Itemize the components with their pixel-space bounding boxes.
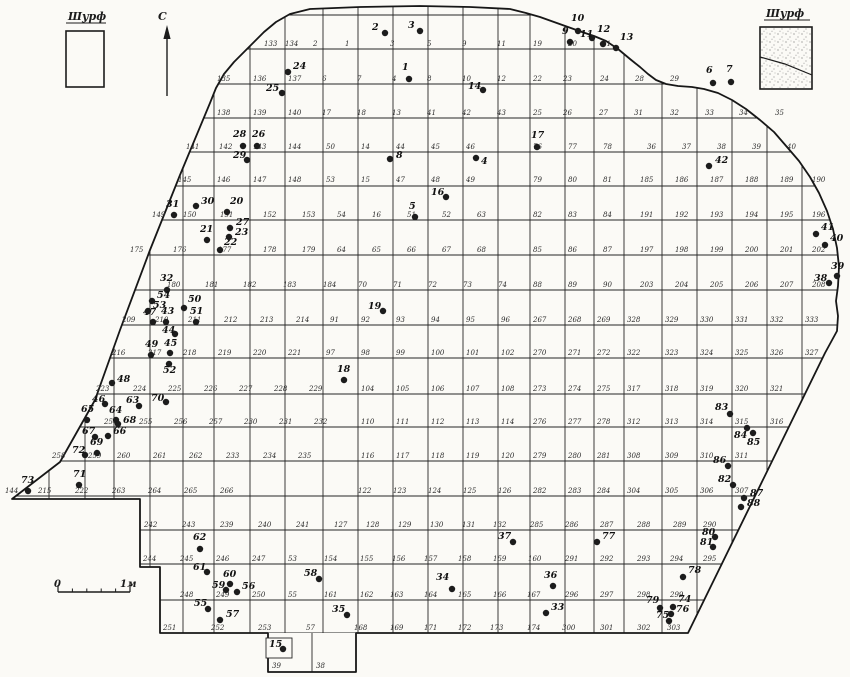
find-spot-dot — [224, 209, 230, 215]
find-spot-number: 19 — [368, 301, 382, 312]
grid-cell-number: 73 — [463, 281, 472, 289]
grid-cell-number: 38 — [316, 662, 325, 670]
grid-cell-number: 16 — [372, 211, 381, 219]
find-spot-dot — [204, 237, 210, 243]
grid-cell-number: 223 — [95, 385, 110, 393]
find-spot-number: 24 — [292, 61, 306, 72]
grid-cell-number: 219 — [217, 349, 232, 357]
grid-cell-number: 209 — [121, 316, 136, 324]
grid-cell-number: 98 — [361, 349, 370, 357]
grid-cell-number: 191 — [640, 211, 653, 219]
grid-cell-number: 182 — [243, 281, 257, 289]
find-spot-number: 23 — [234, 227, 249, 238]
find-spot-dot — [197, 546, 203, 552]
grid-cell-number: 247 — [251, 555, 266, 563]
grid-cell-number: 292 — [599, 555, 614, 563]
find-spot-number: 16 — [431, 187, 445, 198]
find-spot-number: 68 — [123, 415, 137, 426]
grid-cell-number: 242 — [143, 521, 158, 529]
find-spot-number: 57 — [226, 609, 240, 620]
grid-cell-number: 330 — [700, 316, 714, 324]
north-label: С — [158, 10, 167, 23]
grid-cell-number: 113 — [466, 418, 480, 426]
grid-cell-number: 142 — [219, 143, 233, 151]
grid-cell-number: 281 — [596, 452, 610, 460]
grid-cell-number: 314 — [700, 418, 713, 426]
grid-cell-number: 262 — [188, 452, 203, 460]
grid-cell-number: 308 — [627, 452, 641, 460]
grid-cell-number: 36 — [647, 143, 656, 151]
find-spot-dot — [834, 273, 840, 279]
grid-cell-number: 322 — [627, 349, 641, 357]
grid-cell-number: 130 — [430, 521, 444, 529]
find-spot-dot — [150, 319, 156, 325]
grid-cell-number: 135 — [217, 75, 231, 83]
grid-cell-number: 68 — [477, 246, 486, 254]
grid-cell-number: 248 — [179, 591, 194, 599]
grid-cell-number: 71 — [393, 281, 402, 289]
grid-cell-number: 125 — [463, 487, 477, 495]
grid-cell-number: 23 — [562, 75, 572, 83]
grid-cell-number: 65 — [372, 246, 381, 254]
grid-cell-number: 304 — [627, 487, 640, 495]
grid-cell-number: 215 — [37, 487, 52, 495]
find-spot-number: 13 — [620, 32, 634, 43]
grid-cell-number: 297 — [599, 591, 614, 599]
grid-cell-number: 288 — [636, 521, 651, 529]
grid-cell-number: 244 — [142, 555, 156, 563]
find-spot-number: 81 — [700, 537, 713, 548]
find-spot-number: 28 — [232, 129, 247, 140]
grid-cell-number: 283 — [567, 487, 582, 495]
grid-cell-number: 91 — [330, 316, 339, 324]
grid-cell-number: 326 — [770, 349, 784, 357]
find-spot-number: 30 — [201, 196, 215, 207]
test-pit-right: Шурф — [760, 7, 812, 89]
find-spot-dot — [710, 80, 716, 86]
grid-cell-number: 306 — [700, 487, 714, 495]
grid-cell-number: 245 — [179, 555, 194, 563]
grid-cell-number: 50 — [326, 143, 335, 151]
north-arrow-head — [163, 25, 170, 39]
grid-cell-number: 233 — [225, 452, 240, 460]
find-spot-number: 62 — [193, 532, 207, 543]
grid-cell-number: 216 — [111, 349, 126, 357]
grid-cell-number: 131 — [462, 521, 475, 529]
find-spot-number: 67 — [82, 426, 96, 437]
grid-cell-number: 239 — [219, 521, 234, 529]
grid-cell-number: 138 — [217, 109, 231, 117]
grid-cell-number: 55 — [288, 591, 297, 599]
find-spot-dot — [109, 380, 115, 386]
grid-cell-number: 77 — [568, 143, 577, 151]
grid-cell-number: 160 — [528, 555, 542, 563]
grid-cell-number: 39 — [752, 143, 761, 151]
grid-cell-number: 93 — [396, 316, 405, 324]
find-spot-dot — [613, 45, 619, 51]
test-pit-right-stipple — [761, 28, 811, 88]
find-spot-dot — [94, 450, 100, 456]
grid-cell-number: 13 — [392, 109, 401, 117]
find-spot-dot — [148, 352, 154, 358]
find-spot-dot — [149, 298, 155, 304]
grid-cell-number: 166 — [493, 591, 507, 599]
grid-cell-number: 190 — [812, 176, 826, 184]
find-spot-dot — [181, 305, 187, 311]
grid-cell-number: 85 — [533, 246, 542, 254]
grid-cell-number: 4 — [391, 75, 396, 83]
grid-cell-number: 133 — [264, 40, 278, 48]
grid-cell-number: 144 — [5, 487, 18, 495]
grid-cell-number: 274 — [567, 385, 581, 393]
grid-cell-number: 26 — [562, 109, 572, 117]
grid-cell-number: 11 — [497, 40, 506, 48]
grid-cell-number: 187 — [710, 176, 724, 184]
grid-cell-number: 118 — [431, 452, 445, 460]
grid-cell-number: 329 — [665, 316, 679, 324]
grid-cell-number: 5 — [427, 40, 432, 48]
grid-cell-number: 106 — [431, 385, 445, 393]
find-spot-dot — [285, 69, 291, 75]
find-spot-number: 10 — [571, 13, 585, 24]
find-spot-dot — [543, 610, 549, 616]
grid-cell-number: 111 — [396, 418, 409, 426]
grid-cell-number: 81 — [603, 176, 612, 184]
grid-cell-number: 40 — [786, 143, 796, 151]
find-spot-number: 52 — [163, 365, 177, 376]
find-spot-number: 49 — [145, 339, 159, 350]
grid-cell-number: 328 — [627, 316, 641, 324]
grid-cell-number: 296 — [564, 591, 579, 599]
grid-cell-number: 33 — [705, 109, 714, 117]
grid-cell-number: 309 — [665, 452, 679, 460]
find-spot-number: 8 — [396, 150, 403, 161]
grid-cell-number: 302 — [637, 624, 651, 632]
grid-cell-number: 231 — [278, 418, 292, 426]
grid-cell-number: 134 — [285, 40, 298, 48]
find-spot-number: 86 — [713, 455, 727, 466]
grid-cell-number: 271 — [567, 349, 581, 357]
grid-cell-number: 47 — [395, 176, 405, 184]
find-spot-dot — [550, 583, 556, 589]
test-pit-left-label: Шурф — [67, 10, 106, 23]
grid-cell-number: 39 — [272, 662, 281, 670]
find-spot-number: 38 — [814, 273, 828, 284]
find-spot-number: 88 — [747, 498, 761, 509]
grid-cell-number: 222 — [74, 487, 89, 495]
grid-cell-number: 252 — [210, 624, 225, 632]
grid-cell-number: 72 — [428, 281, 437, 289]
grid-cell-number: 255 — [138, 418, 153, 426]
grid-cell-number: 194 — [745, 211, 758, 219]
find-spot-number: 70 — [151, 393, 165, 404]
grid-cell-number: 224 — [132, 385, 146, 393]
grid-cell-number: 90 — [603, 281, 612, 289]
grid-cell-numbers: 1331342135911192021135136137674810122223… — [5, 40, 826, 670]
find-spot-dot — [25, 488, 31, 494]
find-spot-number: 7 — [726, 64, 733, 75]
grid-cell-number: 186 — [675, 176, 689, 184]
grid-cell-number: 235 — [297, 452, 312, 460]
grid-cell-number: 204 — [674, 281, 688, 289]
grid-cell-number: 323 — [665, 349, 679, 357]
grid-cell-number: 188 — [745, 176, 759, 184]
grid-cell-number: 149 — [152, 211, 166, 219]
find-spot-dot — [668, 611, 674, 617]
find-spot-number: 6 — [706, 65, 713, 76]
grid-cell-number: 74 — [498, 281, 507, 289]
grid-cell-number: 261 — [152, 452, 166, 460]
grid-cell-number: 181 — [205, 281, 218, 289]
grid-cell-number: 112 — [431, 418, 445, 426]
grid-cell-number: 305 — [665, 487, 679, 495]
grid-cell-number: 205 — [709, 281, 724, 289]
grid-cell-number: 124 — [428, 487, 441, 495]
grid-cell-number: 29 — [669, 75, 679, 83]
grid-cell-number: 41 — [426, 109, 436, 117]
grid-cell-number: 207 — [779, 281, 794, 289]
find-spot-number: 61 — [193, 562, 206, 573]
find-spot-number: 77 — [602, 531, 616, 542]
find-spot-dot — [105, 433, 111, 439]
grid-cell-number: 89 — [568, 281, 577, 289]
grid-cell-number: 316 — [770, 418, 784, 426]
grid-cell-number: 220 — [252, 349, 267, 357]
north-arrow: С — [158, 10, 171, 96]
find-spot-dot — [193, 203, 199, 209]
grid-cell-number: 153 — [302, 211, 316, 219]
grid-cell-number: 94 — [431, 316, 440, 324]
grid-cell-number: 154 — [324, 555, 337, 563]
grid-cell-number: 311 — [735, 452, 748, 460]
grid-cell-number: 3 — [390, 40, 395, 48]
grid-cell-number: 199 — [710, 246, 724, 254]
grid-cell-number: 87 — [603, 246, 612, 254]
find-spot-number: 37 — [498, 531, 512, 542]
grid-cell-number: 99 — [396, 349, 405, 357]
grid-cell-number: 88 — [533, 281, 542, 289]
find-spot-number: 54 — [157, 290, 170, 301]
find-spot-dot — [84, 417, 90, 423]
find-spot-dot — [240, 143, 246, 149]
find-spot-dot — [227, 581, 233, 587]
grid-cell-number: 139 — [253, 109, 267, 117]
find-spot-number: 56 — [242, 581, 256, 592]
find-spot-number: 17 — [531, 130, 545, 141]
grid-cell-number: 169 — [390, 624, 404, 632]
find-spot-number: 32 — [160, 273, 174, 284]
find-spot-number: 76 — [676, 604, 690, 615]
grid-cell-number: 294 — [669, 555, 683, 563]
grid-cell-number: 136 — [253, 75, 267, 83]
grid-cell-number: 218 — [182, 349, 197, 357]
find-spot-dot — [738, 504, 744, 510]
grid-cell-number: 97 — [326, 349, 335, 357]
find-spot-number: 25 — [265, 83, 280, 94]
grid-cell-number: 172 — [458, 624, 472, 632]
grid-cell-number: 277 — [567, 418, 582, 426]
grid-cell-number: 110 — [361, 418, 375, 426]
grid-cell-number: 243 — [181, 521, 196, 529]
grid-cell-number: 165 — [458, 591, 472, 599]
grid-cell-number: 287 — [599, 521, 614, 529]
grid-cell-number: 48 — [430, 176, 440, 184]
grid-cell-number: 105 — [396, 385, 410, 393]
grid-cell-number: 250 — [251, 591, 266, 599]
find-spot-number: 20 — [229, 196, 244, 207]
grid-cell-number: 256 — [173, 418, 188, 426]
grid-cell-number: 117 — [396, 452, 410, 460]
grid-cell-number: 284 — [596, 487, 610, 495]
grid-cell-number: 66 — [407, 246, 416, 254]
grid-cell-number: 192 — [675, 211, 689, 219]
grid-cell-number: 291 — [564, 555, 578, 563]
grid-cell-number: 164 — [424, 591, 437, 599]
find-spot-dot — [594, 539, 600, 545]
find-spot-dot — [115, 421, 121, 427]
grid-cell-number: 197 — [640, 246, 654, 254]
find-spot-number: 2 — [371, 22, 379, 33]
grid-cell-number: 78 — [603, 143, 612, 151]
find-spot-number: 1 — [402, 62, 409, 73]
grid-cell-number: 318 — [665, 385, 679, 393]
grid-cell-number: 266 — [219, 487, 234, 495]
grid-cell-number: 282 — [532, 487, 547, 495]
find-spot-dot — [234, 589, 240, 595]
find-spot-dot — [387, 156, 393, 162]
grid-lines — [0, 0, 850, 677]
grid-cell-number: 6 — [322, 75, 327, 83]
grid-cell-number: 67 — [442, 246, 451, 254]
find-spot-number: 82 — [718, 474, 732, 485]
find-spot-number: 59 — [212, 580, 226, 591]
grid-cell-number: 63 — [477, 211, 486, 219]
find-spot-dot — [417, 28, 423, 34]
grid-cell-number: 28 — [634, 75, 644, 83]
grid-cell-number: 300 — [562, 624, 576, 632]
grid-cell-number: 96 — [501, 316, 510, 324]
grid-cell-number: 150 — [183, 211, 197, 219]
find-spot-number: 15 — [269, 639, 283, 650]
grid-cell-number: 196 — [812, 211, 826, 219]
excavation-plan-canvas: 1331342135911192021135136137674810122223… — [0, 0, 850, 677]
find-spot-number: 27 — [235, 217, 250, 228]
grid-cell-number: 295 — [702, 555, 717, 563]
grid-cell-number: 32 — [670, 109, 679, 117]
find-spot-number: 31 — [166, 199, 179, 210]
grid-cell-number: 128 — [366, 521, 380, 529]
grid-cell-number: 251 — [162, 624, 176, 632]
find-spot-number: 33 — [551, 602, 565, 613]
find-spot-number: 39 — [831, 261, 845, 272]
grid-cell-number: 161 — [324, 591, 337, 599]
grid-cell-number: 198 — [675, 246, 689, 254]
grid-cell-number: 221 — [287, 349, 301, 357]
grid-cell-number: 126 — [498, 487, 512, 495]
find-spot-dot — [406, 76, 412, 82]
grid-cell-number: 155 — [360, 555, 374, 563]
grid-cell-number: 264 — [147, 487, 161, 495]
grid-cell-number: 214 — [295, 316, 309, 324]
grid-cell-number: 273 — [532, 385, 547, 393]
find-spot-dot — [341, 377, 347, 383]
grid-cell-number: 229 — [308, 385, 323, 393]
grid-cell-number: 107 — [466, 385, 480, 393]
find-spot-dot — [534, 144, 540, 150]
find-spot-number: 35 — [332, 604, 346, 615]
grid-cell-number: 84 — [603, 211, 612, 219]
grid-cell-number: 240 — [257, 521, 272, 529]
grid-cell-number: 24 — [599, 75, 609, 83]
grid-cell-number: 104 — [361, 385, 374, 393]
find-spot-number: 58 — [304, 568, 318, 579]
find-spot-number: 69 — [90, 437, 104, 448]
find-spot-number: 36 — [544, 570, 558, 581]
find-spot-number: 73 — [21, 475, 35, 486]
find-spot-number: 34 — [436, 572, 449, 583]
grid-cell-number: 53 — [288, 555, 297, 563]
grid-cell-number: 2 — [312, 40, 318, 48]
grid-cell-number: 7 — [357, 75, 362, 83]
grid-cell-number: 108 — [501, 385, 515, 393]
grid-cell-number: 156 — [392, 555, 406, 563]
grid-cell-number: 129 — [398, 521, 412, 529]
grid-cell-number: 140 — [288, 109, 302, 117]
grid-cell-number: 86 — [568, 246, 577, 254]
find-spot-dot — [473, 155, 479, 161]
grid-cell-number: 195 — [780, 211, 794, 219]
grid-cell-number: 53 — [326, 176, 335, 184]
grid-cell-number: 8 — [427, 75, 432, 83]
grid-cell-number: 18 — [357, 109, 366, 117]
find-spot-number: 66 — [113, 426, 127, 437]
find-spot-number: 50 — [188, 294, 202, 305]
find-spot-dot — [412, 214, 418, 220]
find-spot-dot — [382, 30, 388, 36]
find-spot-number: 64 — [109, 405, 122, 416]
grid-cell-number: 80 — [568, 176, 577, 184]
find-spot-dot — [813, 231, 819, 237]
grid-cell-number: 145 — [178, 176, 192, 184]
grid-cell-number: 331 — [735, 316, 748, 324]
test-pit-left-box — [66, 31, 104, 87]
grid-cell-number: 144 — [288, 143, 301, 151]
grid-cell-number: 83 — [568, 211, 577, 219]
grid-cell-number: 46 — [465, 143, 475, 151]
grid-cell-number: 324 — [700, 349, 713, 357]
test-pit-left: Шурф — [66, 10, 106, 87]
scale-bar: 0 1м — [54, 579, 136, 592]
find-spot-dot — [449, 586, 455, 592]
grid-cell-number: 42 — [461, 109, 471, 117]
grid-cell-number: 333 — [805, 316, 819, 324]
grid-cell-number: 64 — [337, 246, 346, 254]
grid-cell-number: 127 — [334, 521, 348, 529]
find-spot-dot — [728, 79, 734, 85]
find-spot-number: 12 — [597, 24, 611, 35]
find-spot-number: 83 — [715, 402, 729, 413]
grid-cell-number: 275 — [596, 385, 611, 393]
find-spot-dot — [567, 39, 573, 45]
find-spot-number: 79 — [646, 595, 660, 606]
find-spot-dot — [600, 41, 606, 47]
grid-cell-number: 174 — [527, 624, 540, 632]
grid-cell-number: 325 — [735, 349, 749, 357]
find-spot-number: 60 — [223, 569, 237, 580]
find-spot-dot — [706, 163, 712, 169]
excavation-boundary — [12, 6, 839, 672]
grid-cell-number: 49 — [465, 176, 475, 184]
